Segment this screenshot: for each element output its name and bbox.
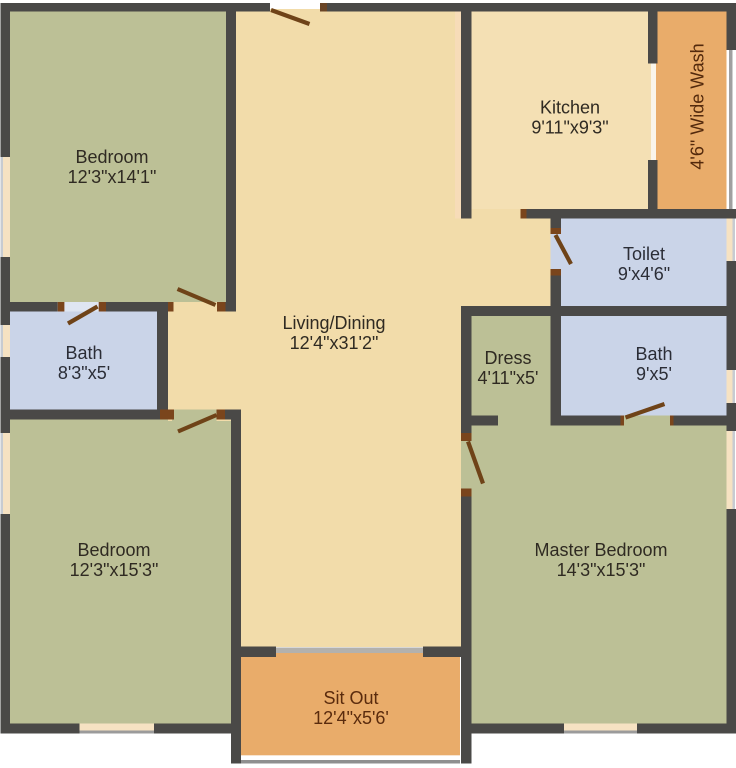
svg-text:9'x5': 9'x5' [636,364,672,384]
svg-text:12'4"x31'2": 12'4"x31'2" [290,333,379,353]
svg-text:Living/Dining: Living/Dining [282,313,385,333]
svg-text:8'3"x5': 8'3"x5' [58,363,110,383]
svg-text:12'3"x14'1": 12'3"x14'1" [68,167,157,187]
svg-text:Bath: Bath [65,343,102,363]
svg-text:Bedroom: Bedroom [77,540,150,560]
svg-text:Dress: Dress [484,348,531,368]
svg-text:4'6" Wide Wash: 4'6" Wide Wash [688,43,708,169]
svg-text:Sit Out: Sit Out [323,688,378,708]
svg-text:9'11"x9'3": 9'11"x9'3" [531,118,608,138]
svg-text:12'3"x15'3": 12'3"x15'3" [70,560,159,580]
svg-text:4'11"x5': 4'11"x5' [478,368,539,388]
svg-text:Bedroom: Bedroom [75,147,148,167]
svg-text:14'3"x15'3": 14'3"x15'3" [557,560,646,580]
svg-text:9'x4'6": 9'x4'6" [618,264,670,284]
svg-text:12'4"x5'6': 12'4"x5'6' [313,708,389,728]
svg-text:Toilet: Toilet [623,244,665,264]
svg-text:Master Bedroom: Master Bedroom [534,540,667,560]
svg-text:Kitchen: Kitchen [540,98,600,118]
svg-text:Bath: Bath [635,344,672,364]
